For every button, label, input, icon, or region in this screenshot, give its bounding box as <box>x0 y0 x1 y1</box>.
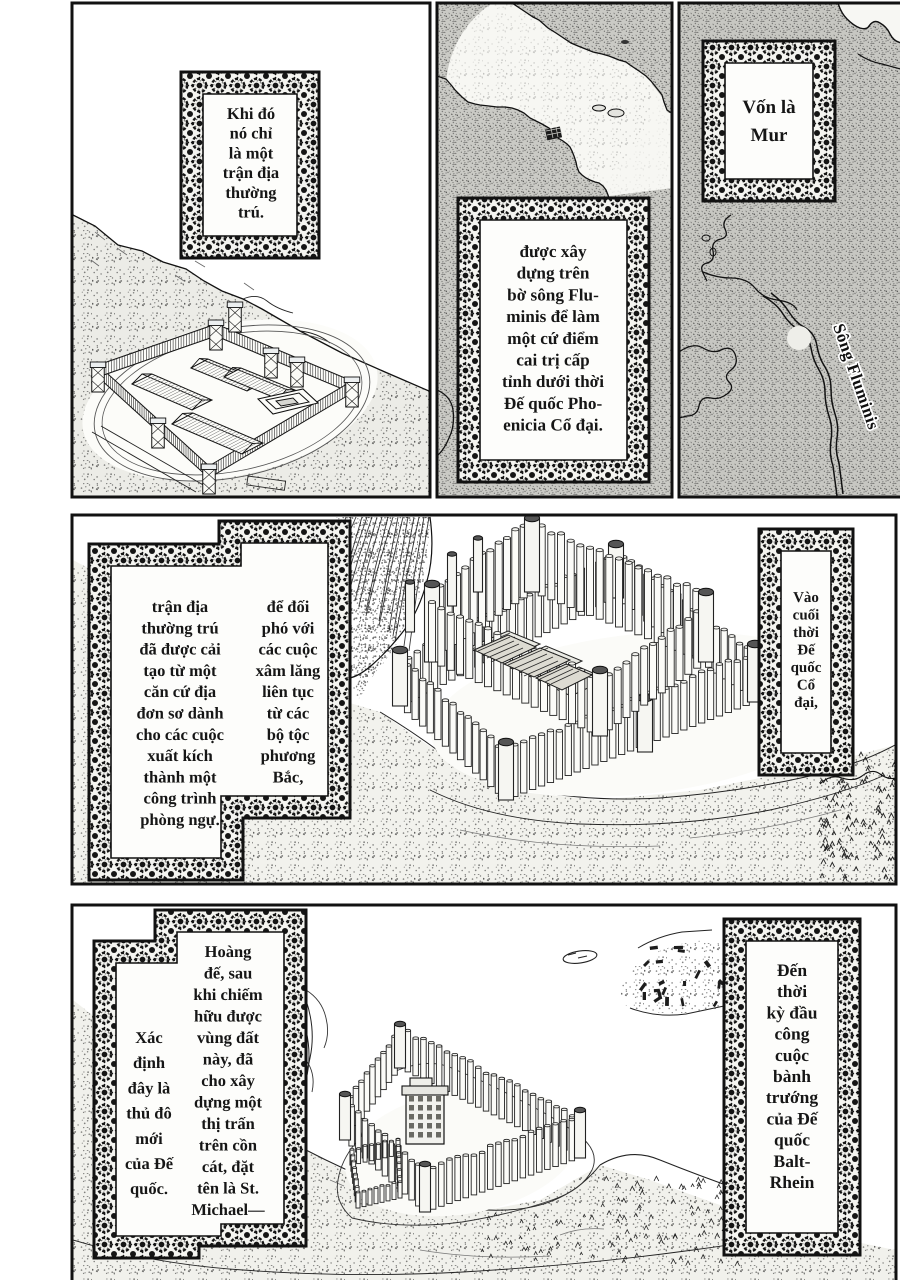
svg-text:kỳ đầu: kỳ đầu <box>766 1002 817 1022</box>
svg-text:Rhein: Rhein <box>770 1172 815 1192</box>
svg-text:liên tục: liên tục <box>262 682 314 701</box>
svg-text:cai trị cấp: cai trị cấp <box>516 351 590 370</box>
svg-text:trú.: trú. <box>238 203 264 222</box>
svg-text:các cuộc: các cuộc <box>258 640 317 659</box>
svg-text:đại,: đại, <box>794 695 818 711</box>
svg-text:thường trú: thường trú <box>141 618 218 637</box>
svg-text:mới: mới <box>135 1129 163 1148</box>
svg-text:công: công <box>775 1024 810 1044</box>
svg-text:bành: bành <box>773 1066 811 1086</box>
svg-text:thị trấn: thị trấn <box>201 1114 255 1133</box>
svg-text:phó với: phó với <box>262 618 315 637</box>
svg-text:vùng đất: vùng đất <box>197 1028 259 1047</box>
svg-text:Cổ: Cổ <box>797 678 816 694</box>
svg-text:phòng ngự.: phòng ngự. <box>140 810 220 829</box>
svg-text:khi chiếm: khi chiếm <box>193 985 262 1004</box>
svg-text:cho xây: cho xây <box>201 1071 255 1090</box>
svg-text:phương: phương <box>261 746 317 765</box>
svg-text:bộ tộc: bộ tộc <box>267 725 310 744</box>
svg-text:minis để làm: minis để làm <box>506 307 600 326</box>
svg-text:đây là: đây là <box>128 1078 171 1097</box>
svg-text:nó chỉ: nó chỉ <box>230 124 273 143</box>
svg-text:này, đã: này, đã <box>203 1050 253 1069</box>
svg-text:tên là St.: tên là St. <box>197 1179 259 1198</box>
svg-text:của Đế: của Đế <box>125 1154 175 1173</box>
svg-text:trên cồn: trên cồn <box>199 1136 257 1155</box>
svg-text:Hoàng: Hoàng <box>205 942 253 961</box>
svg-text:Đến: Đến <box>777 960 807 980</box>
svg-text:Vào: Vào <box>793 590 819 606</box>
svg-text:Đế: Đế <box>797 643 816 659</box>
svg-text:dựng trên: dựng trên <box>517 264 590 283</box>
svg-text:Mur: Mur <box>751 125 789 146</box>
svg-text:quốc.: quốc. <box>130 1179 168 1198</box>
svg-text:được xây: được xây <box>519 242 587 261</box>
svg-text:quốc: quốc <box>791 660 822 676</box>
svg-text:từ các: từ các <box>267 704 309 723</box>
svg-text:thủ đô: thủ đô <box>126 1104 171 1123</box>
svg-text:thời: thời <box>777 981 807 1001</box>
svg-text:đơn sơ dành: đơn sơ dành <box>136 704 223 723</box>
svg-text:tạo từ một: tạo từ một <box>143 661 217 680</box>
svg-text:tỉnh dưới thời: tỉnh dưới thời <box>502 372 604 391</box>
svg-text:định: định <box>133 1053 165 1072</box>
svg-text:căn cứ địa: căn cứ địa <box>144 682 216 701</box>
svg-text:là một: là một <box>229 143 274 162</box>
svg-text:thành một: thành một <box>144 767 217 786</box>
svg-text:để đối: để đối <box>267 597 310 616</box>
svg-text:của Đế: của Đế <box>766 1108 818 1128</box>
svg-text:công trình: công trình <box>144 789 217 808</box>
svg-text:Đế quốc Pho-: Đế quốc Pho- <box>504 394 603 413</box>
svg-text:Khi đó: Khi đó <box>227 104 275 123</box>
svg-text:cát, đặt: cát, đặt <box>202 1157 255 1176</box>
svg-text:Michael—: Michael— <box>191 1200 265 1219</box>
svg-text:trận địa: trận địa <box>223 163 279 182</box>
svg-text:dựng một: dựng một <box>194 1093 263 1112</box>
svg-text:trướng: trướng <box>766 1087 819 1107</box>
svg-text:enicia Cổ đại.: enicia Cổ đại. <box>503 416 603 435</box>
svg-text:thời: thời <box>793 625 819 641</box>
svg-text:Balt-: Balt- <box>774 1151 811 1171</box>
svg-text:cho các cuộc: cho các cuộc <box>136 725 224 744</box>
svg-text:xâm lăng: xâm lăng <box>256 661 321 680</box>
svg-text:thường: thường <box>225 183 277 202</box>
svg-text:trận địa: trận địa <box>152 597 208 616</box>
svg-text:xuất kích: xuất kích <box>147 746 213 765</box>
svg-text:cuộc: cuộc <box>775 1045 809 1065</box>
svg-text:quốc: quốc <box>774 1130 810 1150</box>
svg-text:hữu được: hữu được <box>194 1007 262 1026</box>
svg-text:một cứ điểm: một cứ điểm <box>507 329 599 348</box>
svg-text:cuối: cuối <box>793 608 820 624</box>
svg-text:Bắc,: Bắc, <box>273 767 304 786</box>
svg-text:đã được cải: đã được cải <box>139 640 221 659</box>
svg-text:Vốn là: Vốn là <box>742 97 796 118</box>
svg-text:Xác: Xác <box>135 1028 163 1047</box>
svg-text:đế, sau: đế, sau <box>204 964 253 983</box>
svg-text:bờ sông Flu-: bờ sông Flu- <box>507 285 599 304</box>
